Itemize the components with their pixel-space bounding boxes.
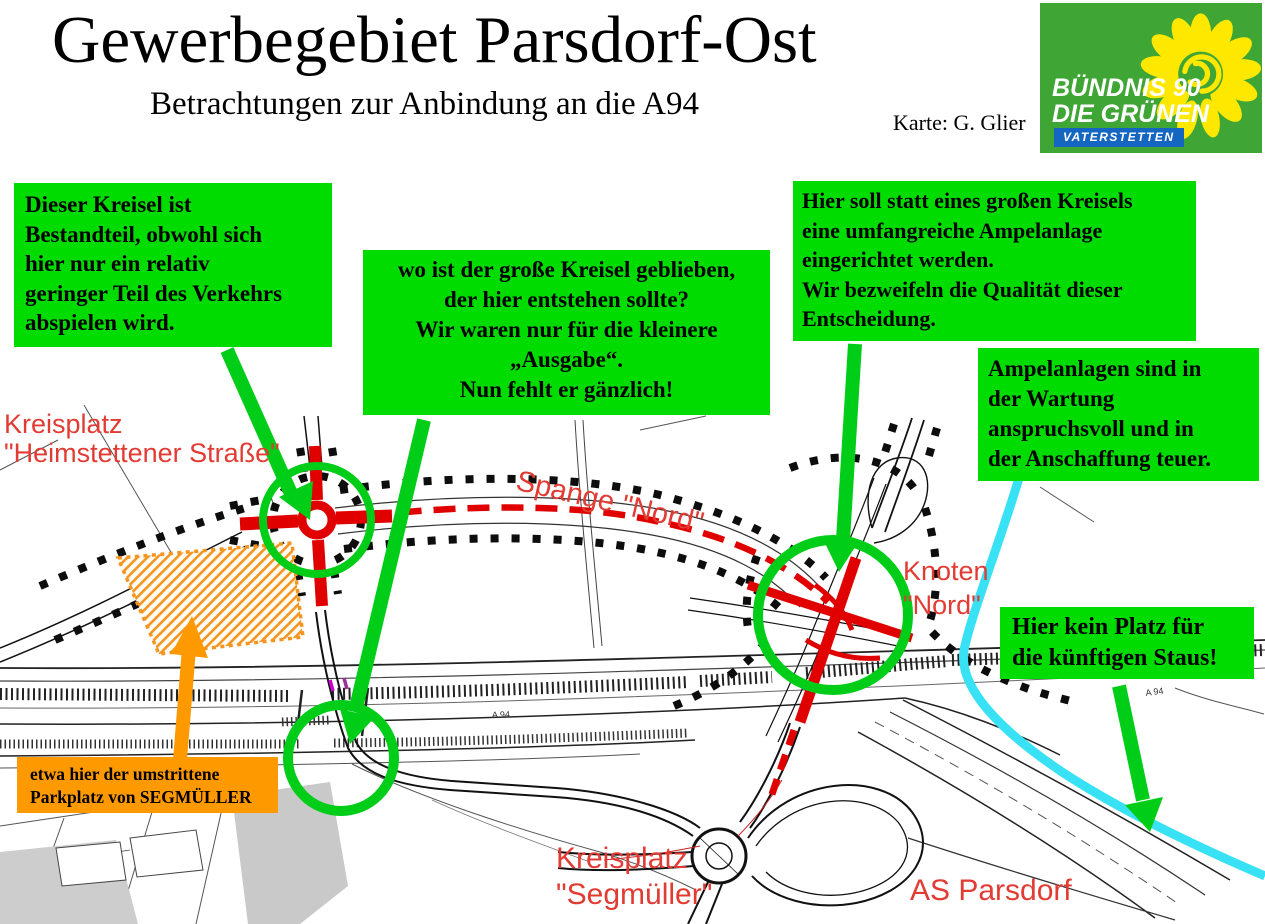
map-label-kreisplatz-heimstettener: Kreisplatz "Heimstettener Straße" bbox=[4, 410, 280, 468]
a94-caption-west: A 94 bbox=[492, 709, 510, 720]
note-kein-platz-staus: Hier kein Platz für die künftigen Staus! bbox=[1000, 607, 1254, 679]
map-label-knoten-nord: Knoten "Nord" bbox=[903, 555, 989, 623]
map-label-kreisplatz-segmueller: Kreisplatz "Segmüller" bbox=[556, 841, 712, 913]
note-kreisel-bestandteil: Dieser Kreisel ist Bestandteil, obwohl s… bbox=[14, 183, 332, 347]
slide: A 94 A 94 Gewerbegebiet Parsdorf-Ost Bet… bbox=[0, 0, 1265, 924]
a94-caption-east: A 94 bbox=[1145, 686, 1164, 698]
map-label-as-parsdorf: AS Parsdorf bbox=[910, 875, 1072, 907]
note-ampelanlage-statt-kreisel: Hier soll statt eines großen Kreisels ei… bbox=[793, 181, 1196, 341]
note-grosser-kreisel-fehlt: wo ist der große Kreisel geblieben, der … bbox=[363, 250, 770, 415]
note-parkplatz-segmueller: etwa hier der umstrittene Parkplatz von … bbox=[17, 757, 278, 813]
note-ampelanlagen-wartung: Ampelanlagen sind in der Wartung anspruc… bbox=[978, 348, 1259, 481]
